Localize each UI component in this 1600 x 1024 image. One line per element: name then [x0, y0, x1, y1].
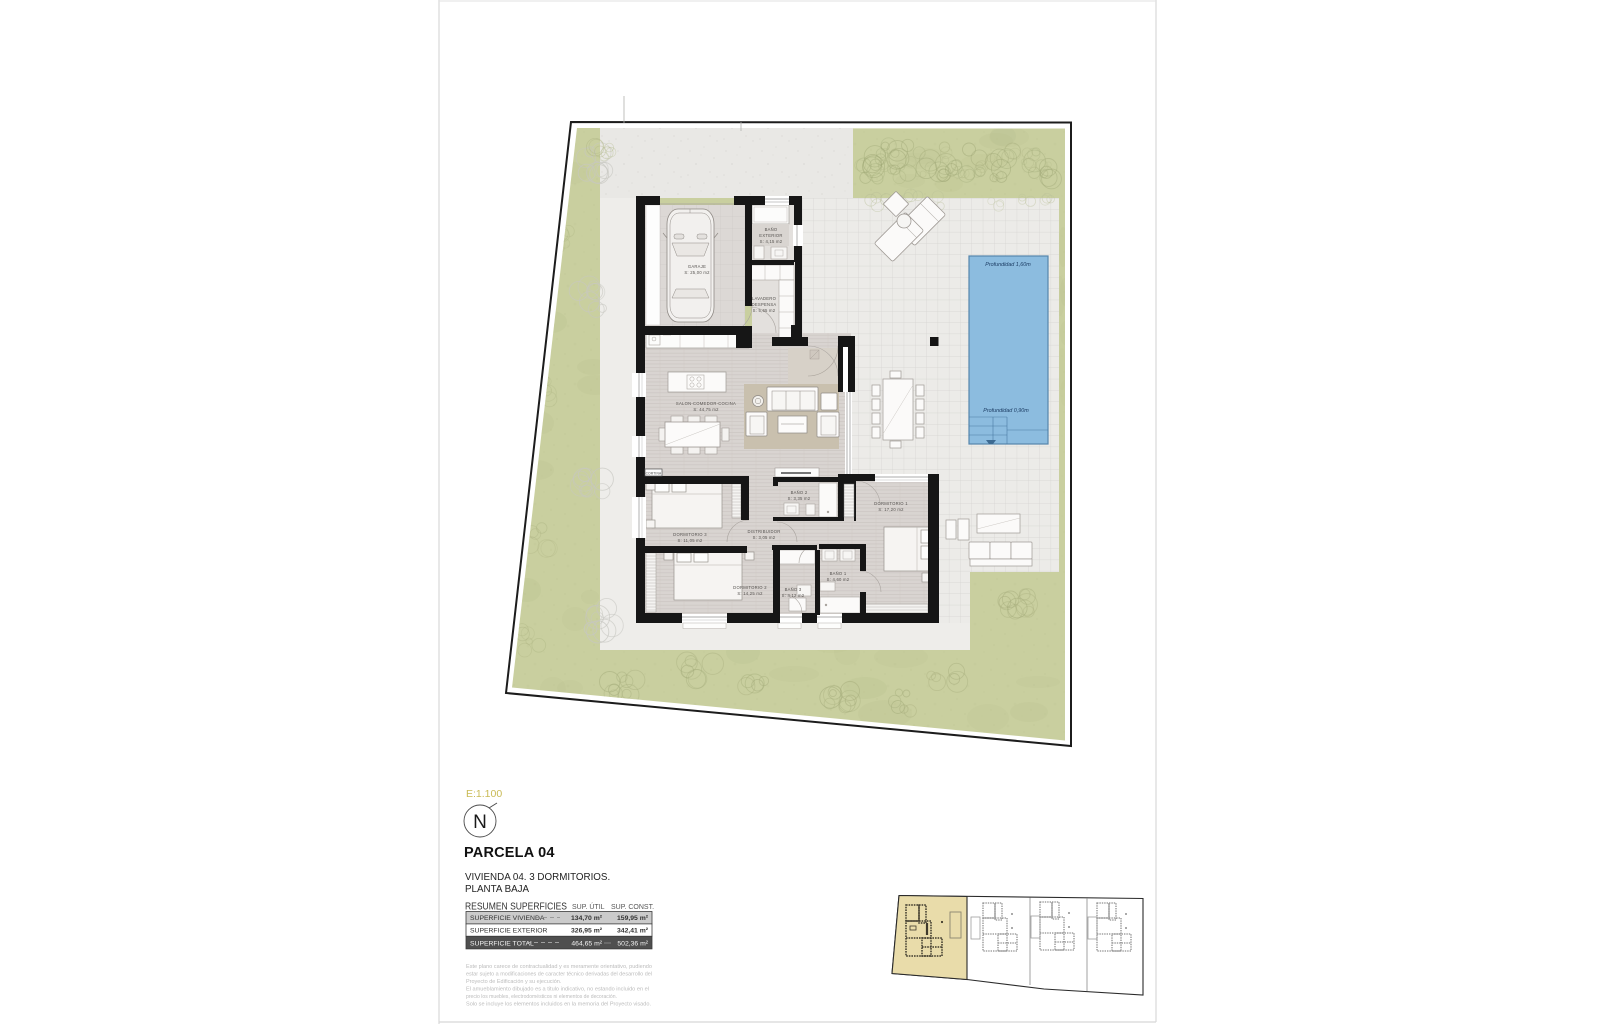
svg-text:N: N [473, 812, 487, 833]
svg-text:BAÑO 3: BAÑO 3 [785, 587, 802, 592]
svg-text:VIVIENDA 04. 3 DORMITORIOS.: VIVIENDA 04. 3 DORMITORIOS. [465, 872, 610, 883]
svg-text:SUP. CONST.: SUP. CONST. [611, 904, 654, 911]
svg-text:S: 11,05 m2: S: 11,05 m2 [677, 538, 702, 543]
svg-text:S: 4,12 m2: S: 4,12 m2 [782, 593, 805, 598]
svg-text:342,41 m²: 342,41 m² [617, 928, 649, 935]
svg-text:BAÑO: BAÑO [765, 227, 778, 232]
svg-text:464,65 m²: 464,65 m² [571, 940, 602, 947]
svg-text:SUPERFICIE TOTAL: SUPERFICIE TOTAL [470, 940, 534, 947]
svg-text:S: 25,00 m2: S: 25,00 m2 [684, 270, 710, 275]
svg-text:S: 4,60 m2: S: 4,60 m2 [827, 577, 850, 582]
svg-text:Profundidad 0,90m: Profundidad 0,90m [983, 408, 1029, 414]
svg-text:precio los muebles, electrodom: precio los muebles, electrodomésticos ni… [466, 994, 617, 1000]
svg-text:SUP. ÚTIL: SUP. ÚTIL [572, 902, 605, 911]
svg-text:S: 4,15 m2: S: 4,15 m2 [760, 239, 783, 244]
svg-text:GARAJE: GARAJE [688, 264, 706, 269]
svg-text:S: 14,25 m2: S: 14,25 m2 [737, 591, 763, 596]
svg-text:DESPENSA: DESPENSA [752, 302, 777, 307]
svg-text:S: 44,75 m2: S: 44,75 m2 [693, 407, 719, 412]
svg-text:Profundidad 1,60m: Profundidad 1,60m [985, 262, 1031, 268]
svg-text:134,70 m²: 134,70 m² [571, 915, 603, 922]
svg-text:S: 3,05 m2: S: 3,05 m2 [753, 535, 776, 540]
svg-text:326,95 m²: 326,95 m² [571, 928, 603, 935]
svg-text:SUPERFICIE VIVIENDA: SUPERFICIE VIVIENDA [470, 915, 545, 922]
svg-text:502,36 m²: 502,36 m² [617, 940, 648, 947]
svg-text:Este plano carece de contractu: Este plano carece de contractualidad y e… [466, 964, 652, 970]
svg-text:EXTERIOR: EXTERIOR [759, 233, 782, 238]
svg-text:BAÑO 1: BAÑO 1 [830, 571, 847, 576]
svg-text:E:1.100: E:1.100 [466, 788, 502, 800]
svg-text:S: 5,65 m2: S: 5,65 m2 [753, 308, 776, 313]
svg-text:BAÑO 2: BAÑO 2 [791, 490, 808, 495]
svg-text:S: 3,35 m2: S: 3,35 m2 [788, 496, 811, 501]
svg-text:DORMITORIO 3: DORMITORIO 3 [673, 532, 707, 537]
svg-text:LAVADERO: LAVADERO [752, 296, 777, 301]
svg-text:Solo se incluye los elementos: Solo se incluye los elementos incluidos … [466, 1002, 651, 1008]
svg-text:DISTRIBUIDOR: DISTRIBUIDOR [747, 529, 780, 534]
svg-text:SALON-COMEDOR-COCINA: SALON-COMEDOR-COCINA [676, 401, 736, 406]
svg-text:S: 17,20 m2: S: 17,20 m2 [878, 507, 904, 512]
svg-text:El amueblamiento dibujado es a: El amueblamiento dibujado es a titulo in… [466, 987, 649, 993]
svg-text:estar sujeto a modificaciones: estar sujeto a modificaciones de caracte… [466, 972, 652, 978]
svg-text:DORMITORIO 1: DORMITORIO 1 [874, 501, 908, 506]
svg-text:PARCELA 04: PARCELA 04 [464, 845, 555, 861]
svg-text:159,95 m²: 159,95 m² [617, 915, 649, 922]
svg-text:PLANTA BAJA: PLANTA BAJA [465, 884, 530, 895]
svg-text:CORTINA: CORTINA [646, 471, 662, 475]
svg-text:DORMITORIO 2: DORMITORIO 2 [733, 585, 767, 590]
svg-text:Proyecto de Edificación y su e: Proyecto de Edificación y su ejecución. [466, 979, 562, 985]
svg-text:RESUMEN SUPERFICIES: RESUMEN SUPERFICIES [465, 902, 567, 913]
svg-text:SUPERFICIE EXTERIOR: SUPERFICIE EXTERIOR [470, 928, 548, 935]
